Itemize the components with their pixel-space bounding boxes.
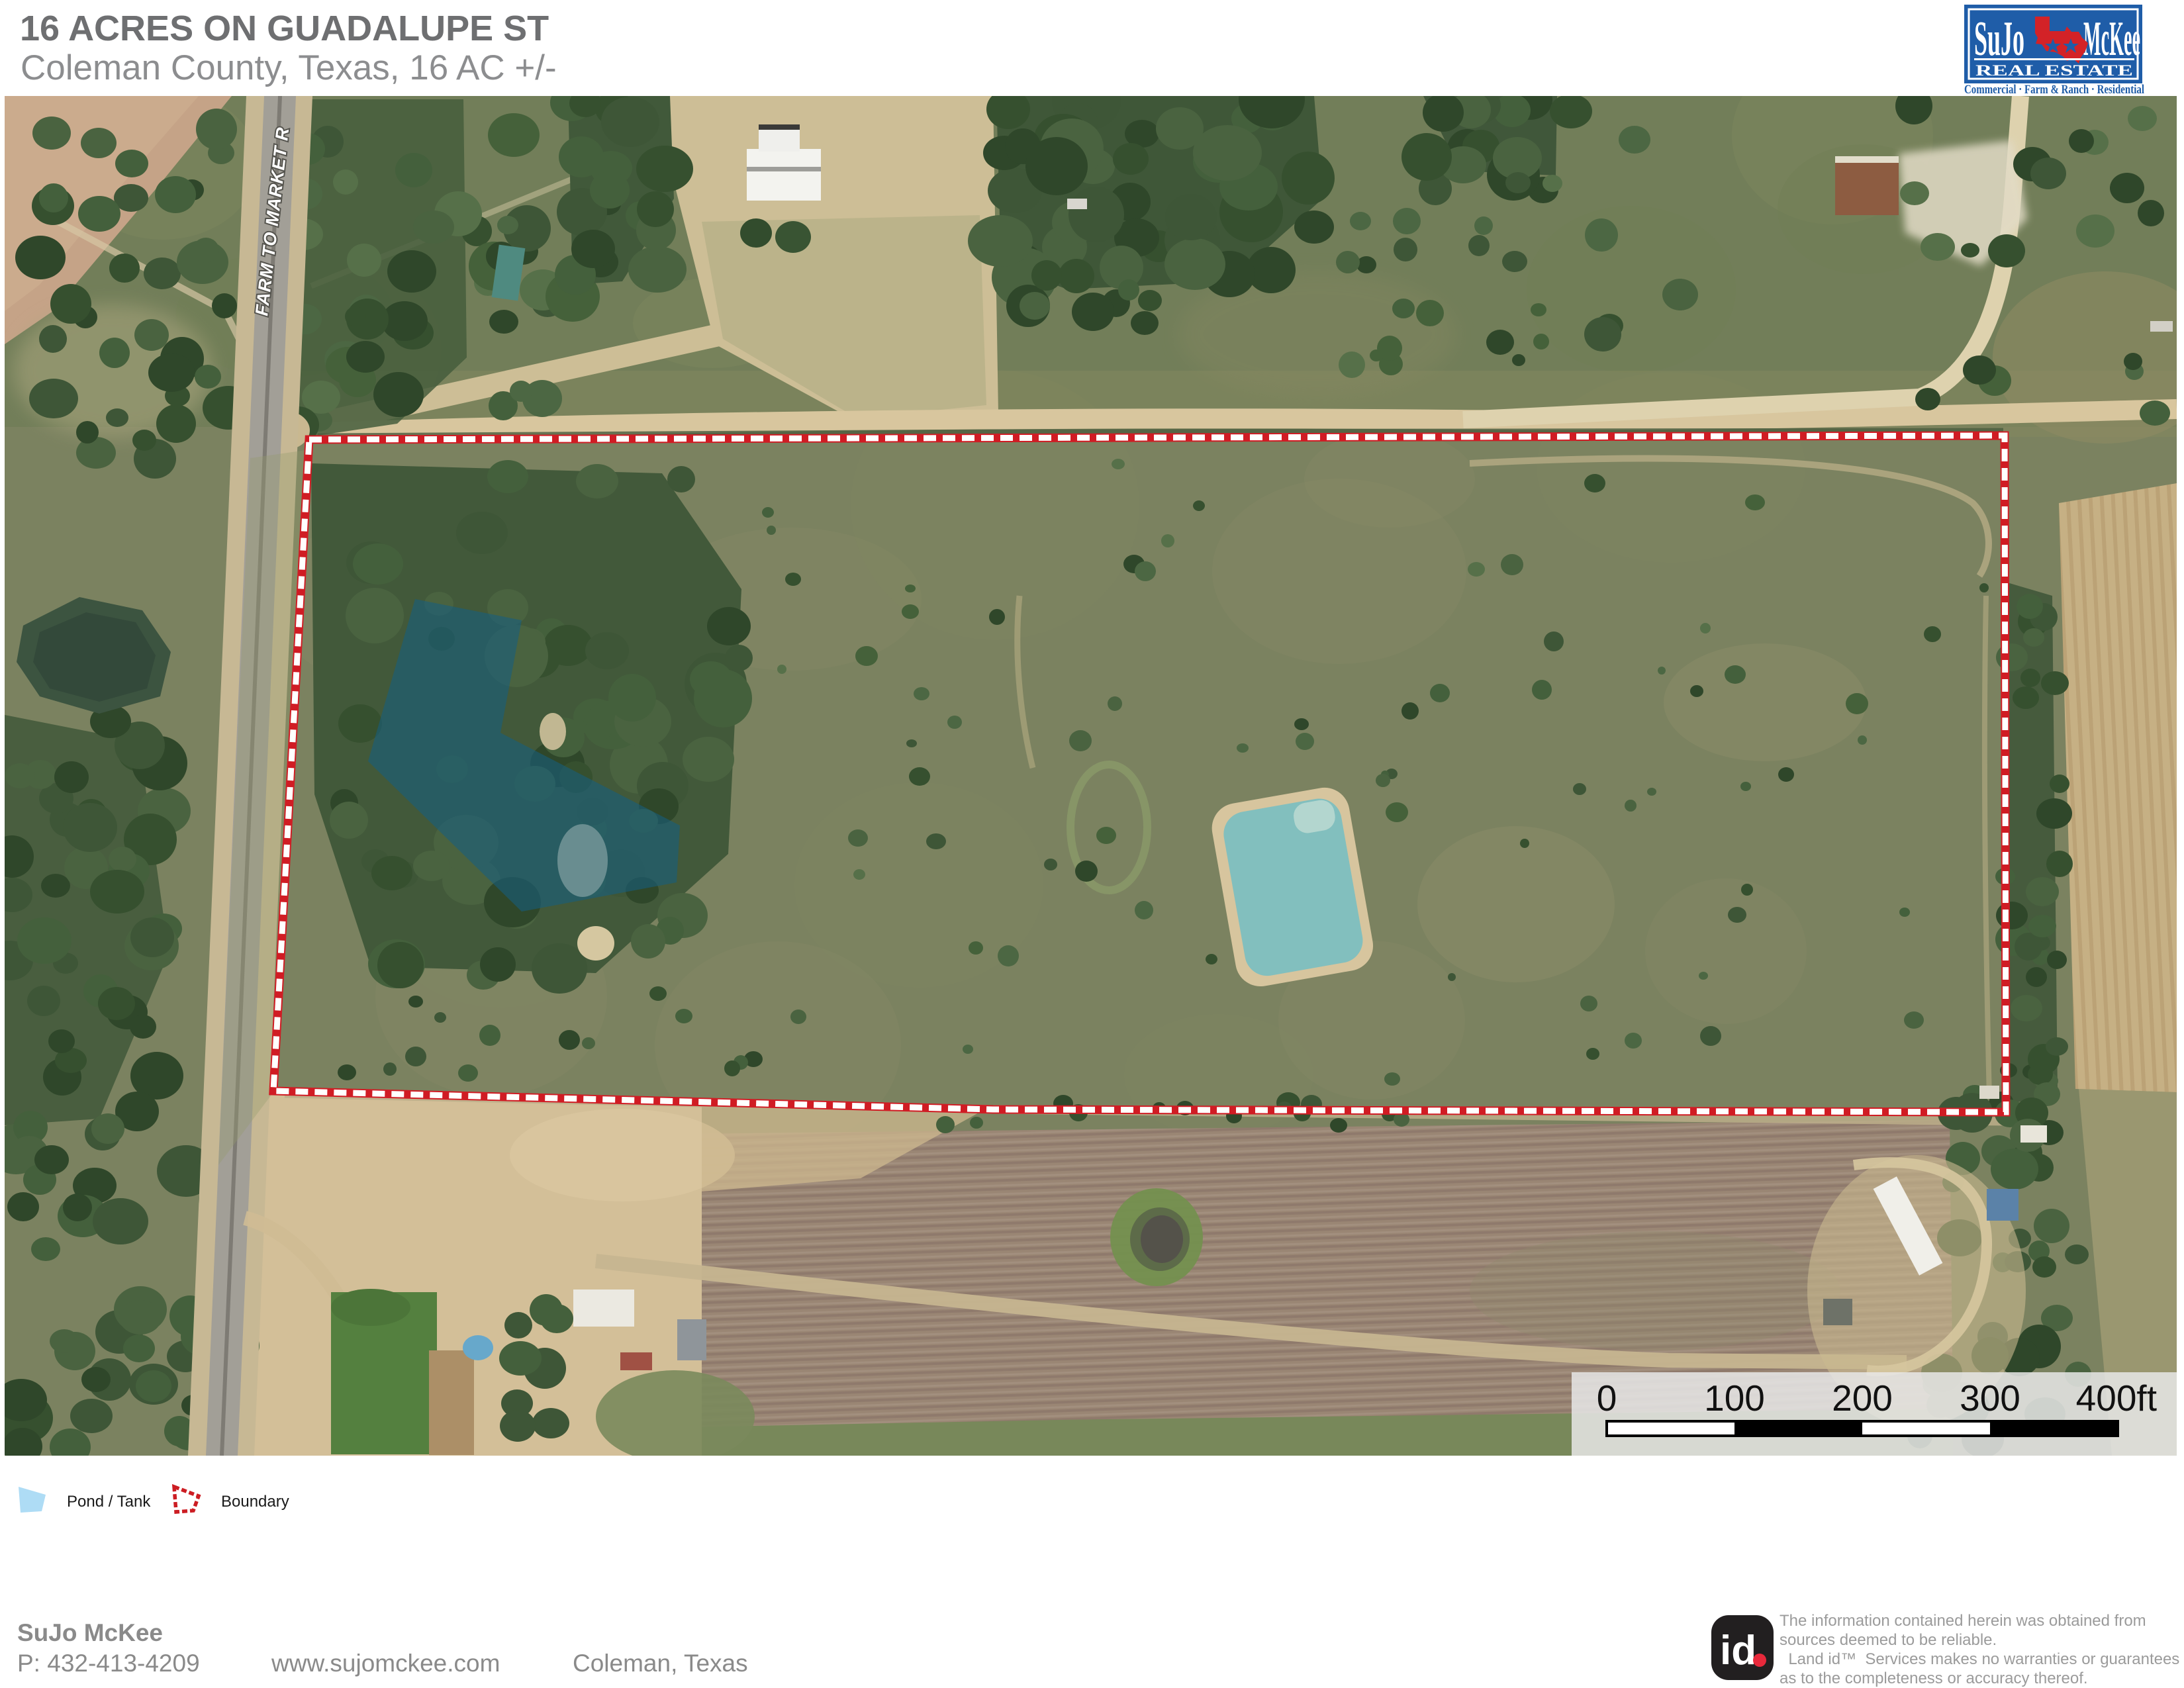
svg-text:id: id bbox=[1720, 1628, 1756, 1673]
svg-text:300: 300 bbox=[1960, 1378, 2020, 1419]
svg-text:Commercial · Farm & Ranch · Re: Commercial · Farm & Ranch · Residential bbox=[1964, 83, 2144, 97]
svg-text:SuJo: SuJo bbox=[1974, 12, 2024, 66]
svg-text:200: 200 bbox=[1832, 1378, 1893, 1419]
svg-text:100: 100 bbox=[1704, 1378, 1765, 1419]
svg-text:0: 0 bbox=[1597, 1378, 1617, 1419]
svg-text:McKee: McKee bbox=[2083, 12, 2140, 66]
svg-text:400ft: 400ft bbox=[2076, 1378, 2157, 1419]
svg-text:REAL ESTATE: REAL ESTATE bbox=[1975, 62, 2133, 79]
